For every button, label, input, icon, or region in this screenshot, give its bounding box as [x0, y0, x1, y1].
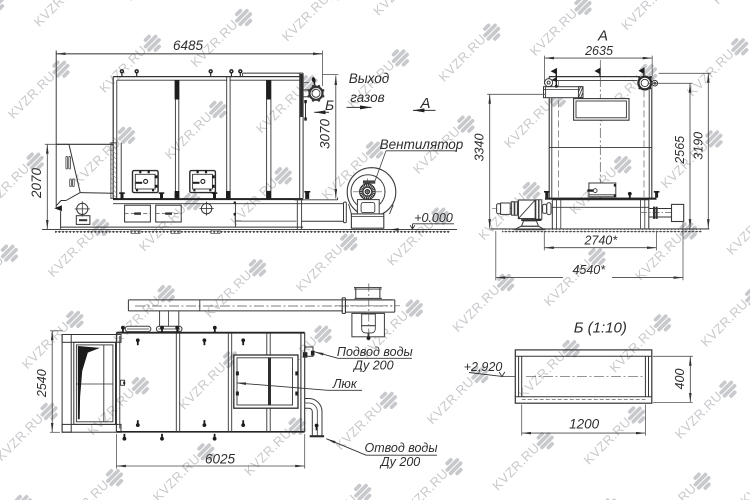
svg-text:KVZR.RU: KVZR.RU — [84, 385, 137, 438]
svg-text:3340: 3340 — [473, 134, 487, 162]
svg-text:KVZR.RU: KVZR.RU — [710, 0, 750, 7]
svg-text:KVZR.RU: KVZR.RU — [96, 42, 149, 95]
svg-text:KVZR.RU: KVZR.RU — [737, 454, 750, 500]
svg-text:3190: 3190 — [692, 132, 706, 160]
svg-text:2565: 2565 — [673, 136, 687, 165]
svg-text:6025: 6025 — [205, 452, 236, 467]
svg-text:KVZR.RU: KVZR.RU — [489, 440, 542, 493]
svg-text:KVZR.RU: KVZR.RU — [279, 0, 332, 44]
svg-text:KVZR.RU: KVZR.RU — [19, 318, 72, 371]
svg-text:400: 400 — [673, 369, 687, 390]
svg-text:А: А — [419, 95, 430, 112]
svg-text:KVZR.RU: KVZR.RU — [150, 451, 203, 500]
svg-text:4540*: 4540* — [572, 263, 606, 277]
svg-text:KVZR.RU: KVZR.RU — [618, 0, 671, 33]
svg-text:KVZR.RU: KVZR.RU — [253, 83, 306, 136]
svg-text:KVZR.RU: KVZR.RU — [632, 230, 685, 283]
svg-text:KVZR.RU: KVZR.RU — [110, 293, 163, 346]
svg-text:KVZR.RU: KVZR.RU — [698, 296, 750, 349]
svg-text:KVZR.RU: KVZR.RU — [398, 466, 451, 500]
svg-text:Б (1:10): Б (1:10) — [574, 320, 627, 337]
svg-text:KVZR.RU: KVZR.RU — [501, 97, 554, 150]
svg-text:+2,920: +2,920 — [464, 360, 503, 374]
svg-text:KVZR.RU: KVZR.RU — [370, 0, 423, 18]
svg-text:KVZR.RU: KVZR.RU — [31, 0, 84, 29]
svg-text:KVZR.RU: KVZR.RU — [646, 480, 699, 500]
svg-text:KVZR.RU: KVZR.RU — [672, 388, 725, 441]
svg-text:KVZR.RU: KVZR.RU — [450, 282, 503, 335]
svg-text:KVZR.RU: KVZR.RU — [241, 425, 294, 478]
svg-text:1200: 1200 — [569, 417, 600, 432]
svg-text:Ду 200: Ду 200 — [379, 455, 421, 469]
svg-text:Люк: Люк — [332, 377, 358, 391]
svg-text:Подвод воды: Подвод воды — [337, 345, 413, 359]
svg-text:газов: газов — [350, 90, 384, 105]
svg-text:KVZR.RU: KVZR.RU — [45, 226, 98, 279]
svg-text:KVZR.RU: KVZR.RU — [201, 267, 254, 320]
svg-text:Б: Б — [325, 97, 334, 113]
svg-text:KVZR.RU: KVZR.RU — [307, 491, 360, 500]
svg-text:KVZR.RU: KVZR.RU — [684, 46, 737, 99]
svg-text:KVZR.RU: KVZR.RU — [0, 160, 33, 213]
svg-text:2635: 2635 — [584, 44, 613, 58]
svg-text:+0.000: +0.000 — [414, 211, 453, 225]
svg-text:Ду 200: Ду 200 — [352, 359, 394, 373]
svg-text:KVZR.RU: KVZR.RU — [436, 31, 489, 84]
svg-text:KVZR.RU: KVZR.RU — [122, 0, 175, 4]
svg-text:KVZR.RU: KVZR.RU — [515, 348, 568, 401]
svg-text:2740*: 2740* — [583, 233, 618, 247]
svg-text:3070: 3070 — [317, 118, 332, 149]
svg-text:Выход: Выход — [349, 71, 390, 86]
svg-text:KVZR.RU: KVZR.RU — [293, 241, 346, 294]
svg-text:KVZR.RU: KVZR.RU — [0, 411, 46, 464]
svg-text:KVZR.RU: KVZR.RU — [162, 109, 215, 162]
svg-text:KVZR.RU: KVZR.RU — [176, 359, 229, 412]
svg-text:Вентилятор: Вентилятор — [380, 137, 464, 152]
svg-text:KVZR.RU: KVZR.RU — [59, 477, 112, 500]
svg-text:2540: 2540 — [35, 369, 49, 398]
svg-text:KVZR.RU: KVZR.RU — [527, 5, 580, 58]
svg-text:KVZR.RU: KVZR.RU — [723, 204, 750, 257]
svg-text:А: А — [597, 28, 608, 45]
svg-text:6485: 6485 — [173, 38, 204, 53]
svg-text:KVZR.RU: KVZR.RU — [424, 374, 477, 427]
svg-text:Отвод воды: Отвод воды — [364, 441, 437, 455]
svg-text:2070: 2070 — [29, 167, 44, 199]
svg-text:KVZR.RU: KVZR.RU — [5, 68, 58, 121]
